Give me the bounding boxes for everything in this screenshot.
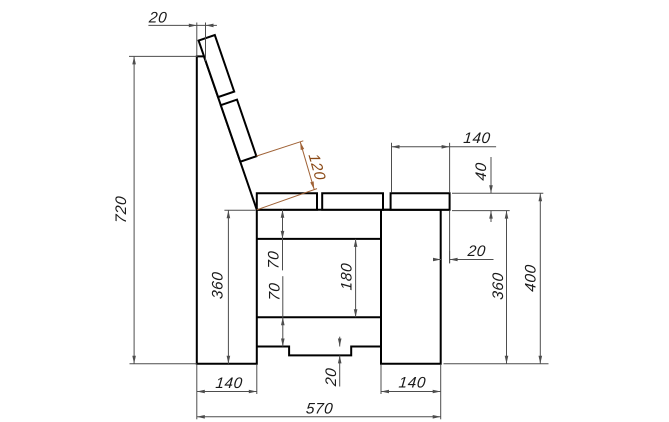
svg-text:360: 360 <box>490 272 507 301</box>
svg-text:180: 180 <box>338 262 355 291</box>
svg-text:140: 140 <box>215 375 244 392</box>
svg-text:70: 70 <box>266 282 283 302</box>
svg-text:400: 400 <box>523 264 540 293</box>
svg-text:140: 140 <box>398 375 427 392</box>
svg-text:140: 140 <box>463 130 492 147</box>
svg-text:360: 360 <box>210 271 227 300</box>
svg-text:20: 20 <box>323 367 340 388</box>
svg-text:20: 20 <box>147 10 168 27</box>
svg-text:20: 20 <box>466 243 487 260</box>
svg-text:70: 70 <box>266 250 283 270</box>
svg-text:720: 720 <box>113 195 130 224</box>
svg-text:570: 570 <box>305 400 334 417</box>
svg-text:40: 40 <box>473 162 490 182</box>
